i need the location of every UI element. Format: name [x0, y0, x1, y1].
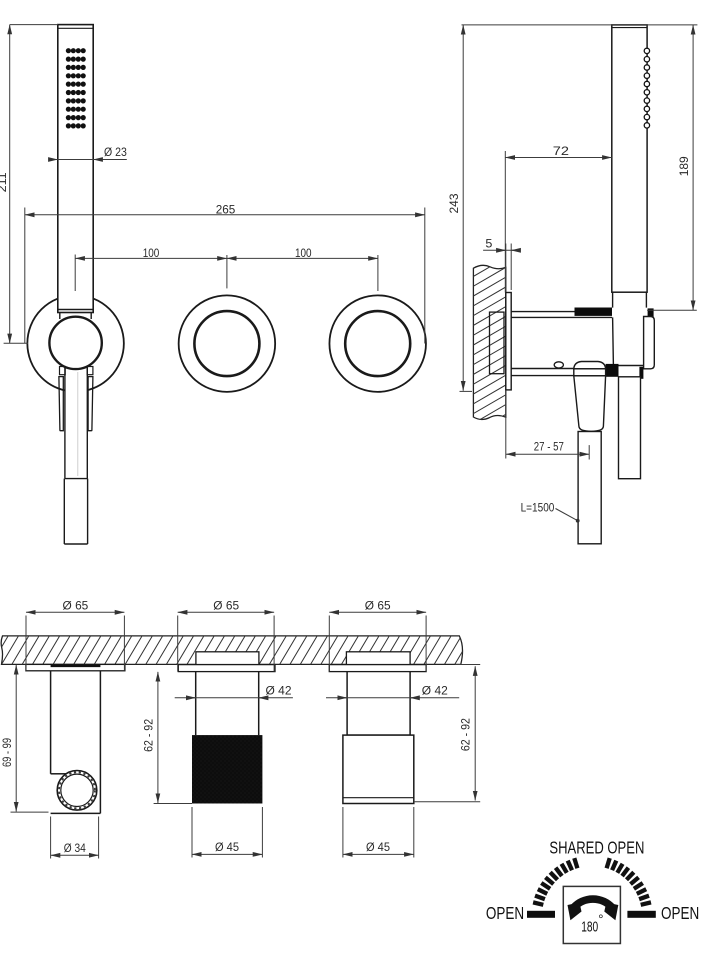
svg-text:Ø 45: Ø 45: [215, 840, 239, 854]
svg-text:265: 265: [216, 203, 236, 217]
svg-text:100: 100: [295, 246, 312, 260]
svg-text:Ø 42: Ø 42: [266, 683, 292, 697]
svg-text:L=1500: L=1500: [521, 501, 555, 515]
svg-text:OPEN: OPEN: [486, 903, 524, 923]
svg-text:Ø 23: Ø 23: [104, 145, 127, 159]
svg-text:Ø 34: Ø 34: [64, 841, 86, 855]
svg-text:62 - 92: 62 - 92: [141, 719, 155, 752]
svg-text:Ø 65: Ø 65: [365, 599, 391, 613]
svg-text:Ø 45: Ø 45: [366, 840, 390, 854]
svg-text:Ø 42: Ø 42: [422, 683, 448, 697]
svg-text:72: 72: [553, 144, 570, 158]
svg-text:189: 189: [677, 156, 691, 176]
svg-text:SHARED OPEN: SHARED OPEN: [549, 838, 644, 858]
svg-text:211: 211: [0, 172, 9, 192]
svg-text:69 - 99: 69 - 99: [0, 738, 14, 767]
svg-text:100: 100: [143, 246, 160, 260]
svg-text:27 - 57: 27 - 57: [534, 440, 564, 454]
svg-text:Ø 65: Ø 65: [213, 599, 239, 613]
svg-text:62 - 92: 62 - 92: [459, 718, 473, 751]
svg-text:°: °: [598, 912, 603, 927]
svg-text:243: 243: [447, 193, 461, 213]
svg-text:Ø 65: Ø 65: [63, 599, 89, 613]
svg-text:5: 5: [485, 236, 492, 250]
svg-text:OPEN: OPEN: [661, 903, 699, 923]
svg-text:180: 180: [581, 920, 598, 936]
